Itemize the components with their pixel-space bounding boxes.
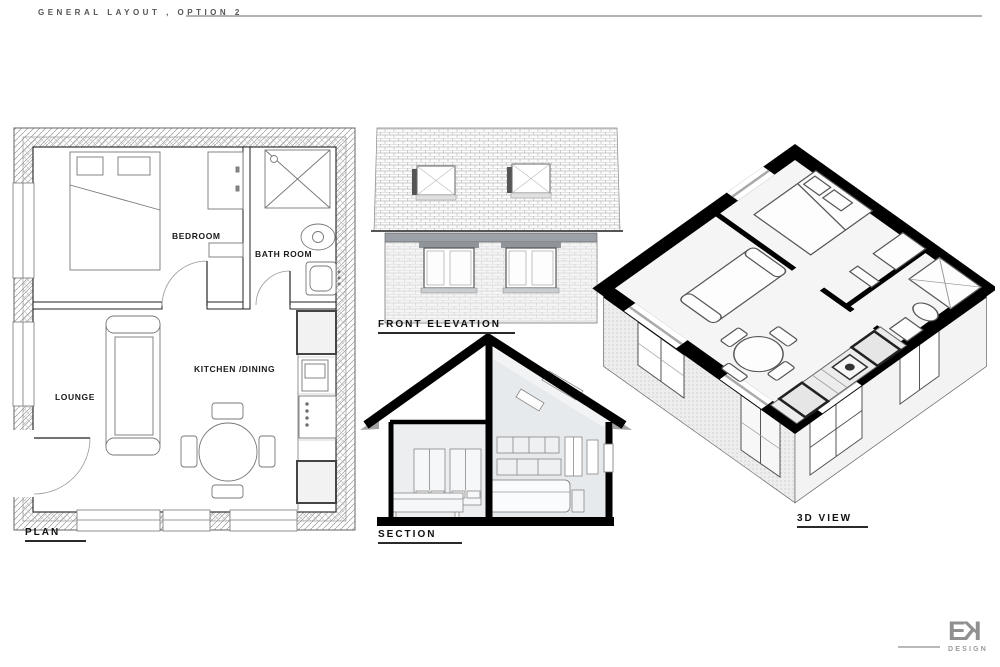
front-elevation-drawing xyxy=(368,110,626,332)
room-label-lounge: LOUNGE xyxy=(55,392,95,402)
section-interior xyxy=(389,346,614,519)
ek-design-logo: EK DESIGN xyxy=(948,618,994,653)
logo-rule-line xyxy=(898,646,940,648)
logo-letter-k: K xyxy=(964,618,982,645)
plan-label: PLAN xyxy=(25,527,86,542)
front-elevation-label: FRONT ELEVATION xyxy=(378,319,515,334)
room-label-bedroom: BEDROOM xyxy=(172,231,221,241)
room-label-bathroom: BATH ROOM xyxy=(255,249,312,259)
room-label-kitchen-dining: KITCHEN /DINING xyxy=(194,364,275,374)
logo-letter-e: E xyxy=(948,618,964,645)
presentation-sheet: GENERAL LAYOUT , OPTION 2 xyxy=(0,0,1000,667)
logo-subtitle: DESIGN xyxy=(948,646,994,653)
3d-view-label: 3D VIEW xyxy=(797,513,868,528)
floor-plan-drawing: BEDROOM BATH ROOM LOUNGE KITCHEN /DINING xyxy=(10,118,360,550)
elevation-roof xyxy=(371,128,623,231)
title-rule-line xyxy=(186,15,982,17)
elevation-wall xyxy=(385,233,597,323)
logo-letters: EK xyxy=(948,618,994,645)
section-label: SECTION xyxy=(378,529,462,544)
3d-view-drawing xyxy=(590,138,995,518)
